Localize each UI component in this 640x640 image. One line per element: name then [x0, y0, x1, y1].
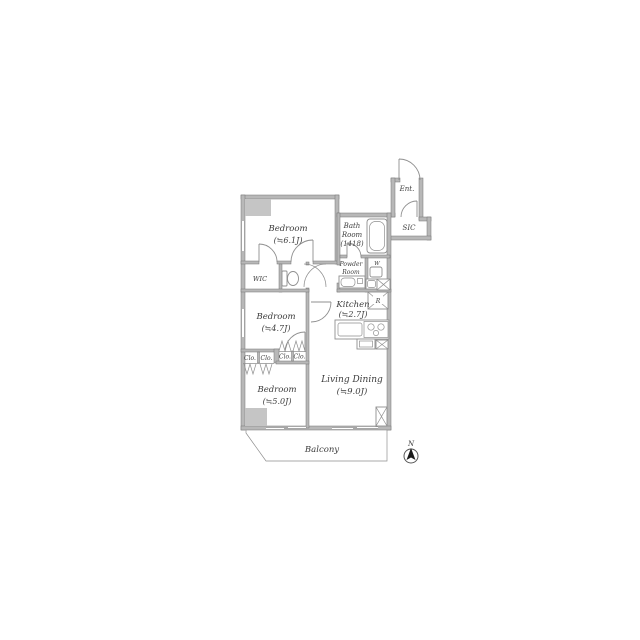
powder-label-2: Room [341, 269, 360, 276]
entrance-label: Ent. [399, 185, 415, 193]
bath-label-2: Room [341, 231, 363, 239]
pillar-top-left [245, 199, 271, 216]
north-label: N [407, 440, 415, 448]
wic-label: WIC [253, 275, 267, 283]
bathtub-icon [367, 219, 387, 253]
pillar-bottom-right [376, 407, 387, 426]
toilet-door-arc [304, 264, 326, 287]
hall-entrance-door-arc [401, 201, 417, 217]
powder-label-1: Powder [339, 261, 364, 268]
bath-label-1: Bath [343, 222, 361, 230]
toilet-icon [282, 271, 299, 286]
closet-label: Clo. [294, 354, 306, 361]
bedroom-mid-label: Bedroom [255, 312, 295, 322]
washer-label: W [374, 261, 381, 267]
sic-label: SIC [403, 224, 417, 232]
bedroom-mid-size: (≒4.7J) [262, 324, 291, 333]
entrance-door-arc [399, 159, 420, 180]
bath-size: (1418) [340, 240, 364, 248]
bedroom-main-size: (≒6.1J) [274, 236, 303, 245]
closet-label: Clo. [244, 355, 256, 362]
refrigerator-label: R [375, 298, 381, 305]
bedroom-main-label: Bedroom [267, 224, 307, 234]
washer-space-icon [366, 267, 390, 290]
toilet-door-arc [304, 264, 326, 287]
living-dining-size: (≒9.0J) [337, 386, 368, 397]
closet-label: Clo. [261, 355, 273, 362]
kitchen-label: Kitchen [335, 300, 369, 310]
floor-plan-svg: Bedroom (≒6.1J) Bath Room (1418) Ent. SI… [0, 0, 640, 640]
living-dining-label: Living Dining [320, 375, 383, 385]
kitchen-size: (≒2.7J) [339, 310, 368, 319]
floor-plan-page: Bedroom (≒6.1J) Bath Room (1418) Ent. SI… [0, 0, 640, 640]
bedroom-small-size: (≒5.0J) [263, 397, 292, 406]
balcony-label: Balcony [304, 445, 339, 455]
north-arrow [404, 448, 418, 463]
kitchen-counter-icon [335, 320, 389, 349]
closet-label: Clo. [279, 354, 291, 361]
pillar-bottom-left [245, 408, 267, 426]
bedroom-small-label: Bedroom [256, 385, 296, 395]
hall-ld-door-arc [311, 302, 331, 322]
vanity-sink-icon [339, 276, 365, 288]
wic-door-arc [259, 244, 277, 262]
